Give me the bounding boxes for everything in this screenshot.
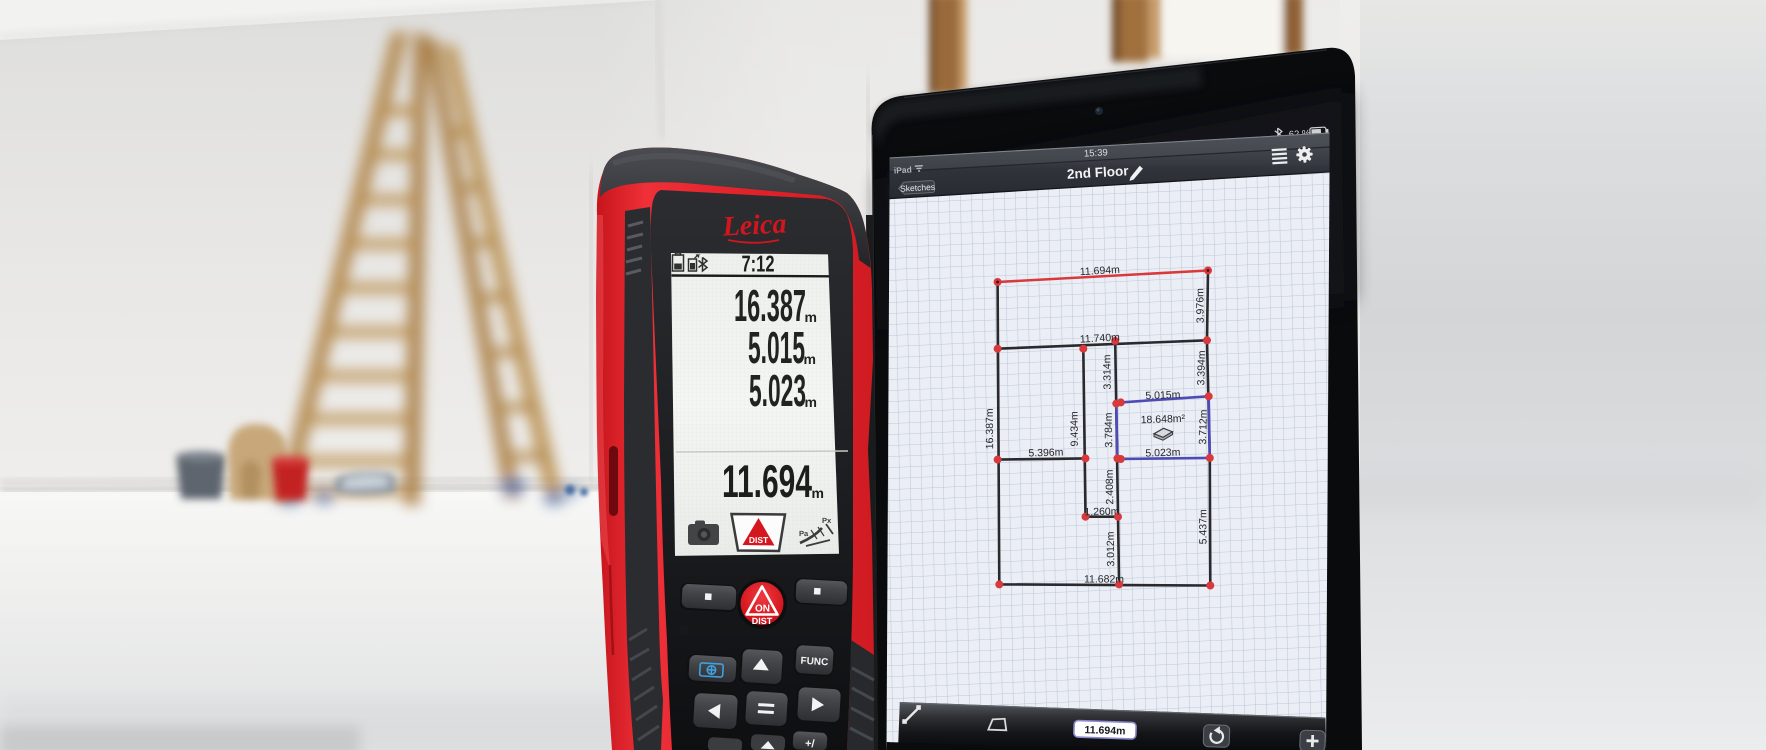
svg-text:Px: Px	[822, 516, 832, 525]
svg-text:+/: +/	[805, 738, 815, 750]
svg-text:11.740m: 11.740m	[1079, 331, 1120, 345]
svg-text:11.682m: 11.682m	[1084, 574, 1124, 586]
svg-text:7:12: 7:12	[742, 251, 775, 277]
svg-text:3.976m: 3.976m	[1194, 288, 1206, 323]
svg-text:18.648m²: 18.648m²	[1141, 413, 1186, 427]
svg-text:5.023: 5.023	[749, 365, 806, 416]
svg-text:5.396m: 5.396m	[1028, 447, 1064, 460]
svg-text:3.012m: 3.012m	[1105, 531, 1118, 566]
svg-text:Leica: Leica	[721, 208, 787, 242]
svg-text:15:39: 15:39	[1084, 147, 1108, 159]
svg-text:iPad: iPad	[894, 164, 912, 175]
svg-text:11.694m: 11.694m	[1084, 724, 1125, 737]
svg-text:5.023m: 5.023m	[1145, 446, 1181, 459]
svg-text:FUNC: FUNC	[800, 656, 828, 669]
svg-text:3.314m: 3.314m	[1101, 354, 1114, 389]
svg-text:3.712m: 3.712m	[1197, 409, 1210, 445]
svg-text:5.015m: 5.015m	[1145, 389, 1181, 402]
svg-text:3.784m: 3.784m	[1103, 412, 1116, 447]
svg-text:ON: ON	[755, 604, 770, 615]
svg-text:9.434m: 9.434m	[1068, 411, 1080, 446]
svg-text:Pa: Pa	[799, 529, 809, 538]
svg-text:Sketches: Sketches	[900, 182, 935, 194]
svg-text:1.260m: 1.260m	[1084, 506, 1119, 519]
svg-text:11.694m: 11.694m	[1079, 264, 1120, 278]
svg-text:2.408m: 2.408m	[1104, 469, 1117, 504]
svg-text:DIST: DIST	[752, 616, 773, 626]
svg-text:5.437m: 5.437m	[1197, 509, 1209, 544]
svg-text:3.394m: 3.394m	[1195, 350, 1208, 386]
svg-text:DIST: DIST	[749, 535, 769, 545]
svg-text:m: m	[812, 485, 824, 501]
svg-text:m: m	[805, 309, 817, 325]
svg-text:m: m	[805, 394, 817, 410]
svg-text:11.694: 11.694	[722, 455, 812, 507]
svg-text:16.387m: 16.387m	[984, 408, 996, 449]
